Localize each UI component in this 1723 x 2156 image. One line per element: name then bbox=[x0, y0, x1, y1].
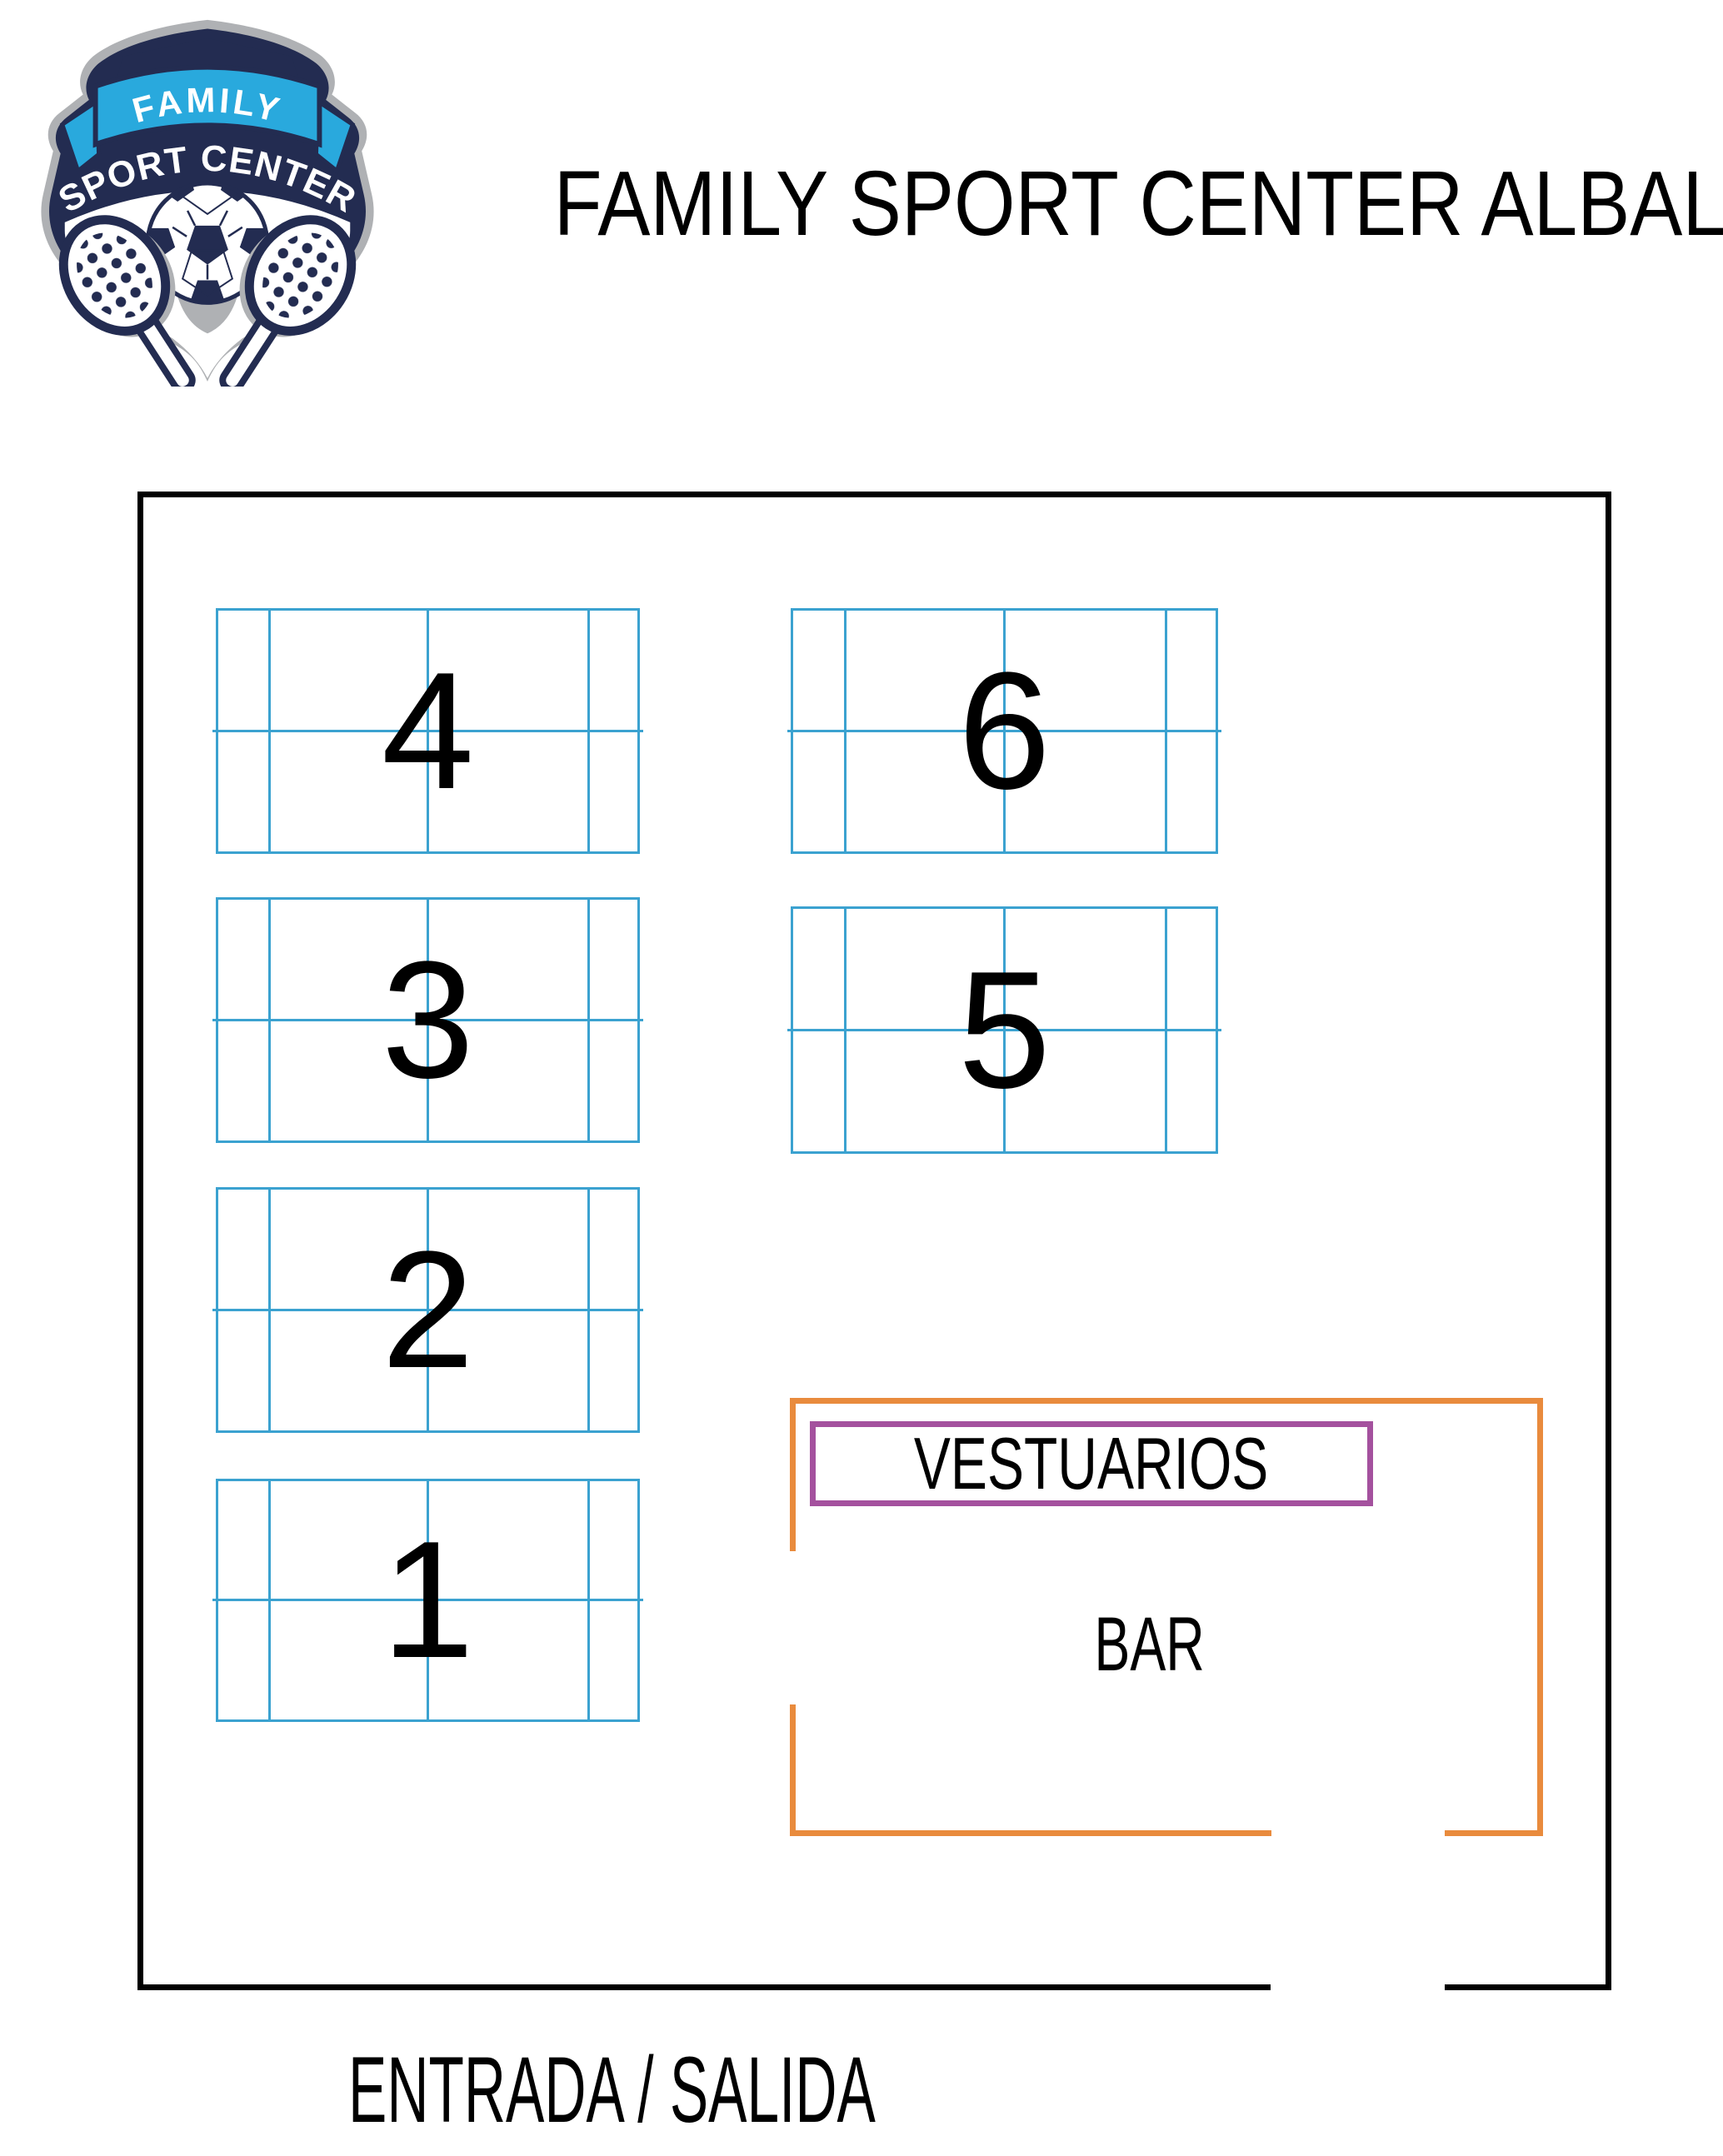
court-2: 2 bbox=[216, 1187, 640, 1433]
entrance-label: ENTRADA / SALIDA bbox=[348, 2041, 876, 2139]
vestuarios-label: VESTUARIOS bbox=[914, 1427, 1268, 1500]
bar-area: BAR bbox=[983, 1606, 1316, 1683]
court-1: 1 bbox=[216, 1479, 640, 1722]
court-3: 3 bbox=[216, 897, 640, 1143]
court-6: 6 bbox=[791, 608, 1218, 854]
bar-area-outline-left-upper bbox=[790, 1398, 796, 1551]
court-number: 6 bbox=[793, 611, 1216, 851]
vestuarios-room: VESTUARIOS bbox=[810, 1421, 1373, 1506]
court-number: 2 bbox=[218, 1190, 637, 1430]
wall-right bbox=[1606, 492, 1611, 1990]
bar-area-outline-bottom-right bbox=[1445, 1830, 1543, 1836]
court-number: 1 bbox=[218, 1481, 637, 1719]
page-title: FAMILY SPORT CENTER ALBAL bbox=[554, 158, 1576, 250]
bar-label: BAR bbox=[1095, 1606, 1205, 1683]
bar-area-outline-top bbox=[790, 1398, 1543, 1404]
bar-area-outline-bottom-left bbox=[790, 1830, 1271, 1836]
wall-top bbox=[137, 492, 1611, 497]
court-number: 3 bbox=[218, 900, 637, 1140]
court-5: 5 bbox=[791, 906, 1218, 1154]
court-4: 4 bbox=[216, 608, 640, 854]
court-number: 4 bbox=[218, 611, 637, 851]
wall-bottom-right-segment bbox=[1445, 1984, 1611, 1990]
wall-left bbox=[137, 492, 143, 1990]
bar-area-outline-left-lower bbox=[790, 1704, 796, 1836]
facility-map-page: FAMILY SPORT CENTER bbox=[0, 0, 1723, 2156]
bar-area-outline-right bbox=[1537, 1398, 1543, 1836]
court-number: 5 bbox=[793, 909, 1216, 1151]
family-sport-center-logo: FAMILY SPORT CENTER bbox=[17, 5, 398, 387]
wall-bottom-left-segment bbox=[137, 1984, 1271, 1990]
